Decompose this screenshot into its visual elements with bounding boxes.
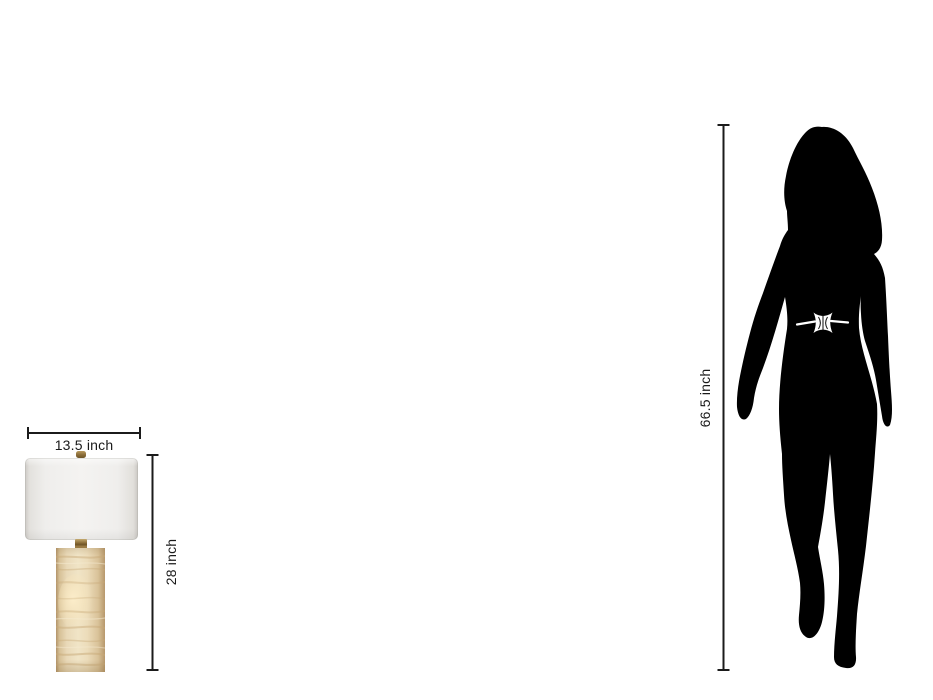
belt-strap-right	[831, 321, 848, 323]
woman-silhouette	[730, 115, 933, 675]
lamp-height-dimension-line	[146, 449, 159, 676]
person-height-dimension-line	[717, 119, 730, 677]
lamp-height-label: 28 inch	[163, 539, 179, 586]
person-height-label: 66.5 inch	[697, 369, 713, 428]
lamp-finial	[76, 451, 86, 458]
lamp-base	[56, 548, 105, 672]
scale-comparison-diagram: 13.5 inch	[0, 0, 933, 700]
lamp-shade	[25, 458, 138, 540]
base-vertical-shading	[56, 548, 105, 672]
woman-silhouette-body	[737, 127, 892, 668]
